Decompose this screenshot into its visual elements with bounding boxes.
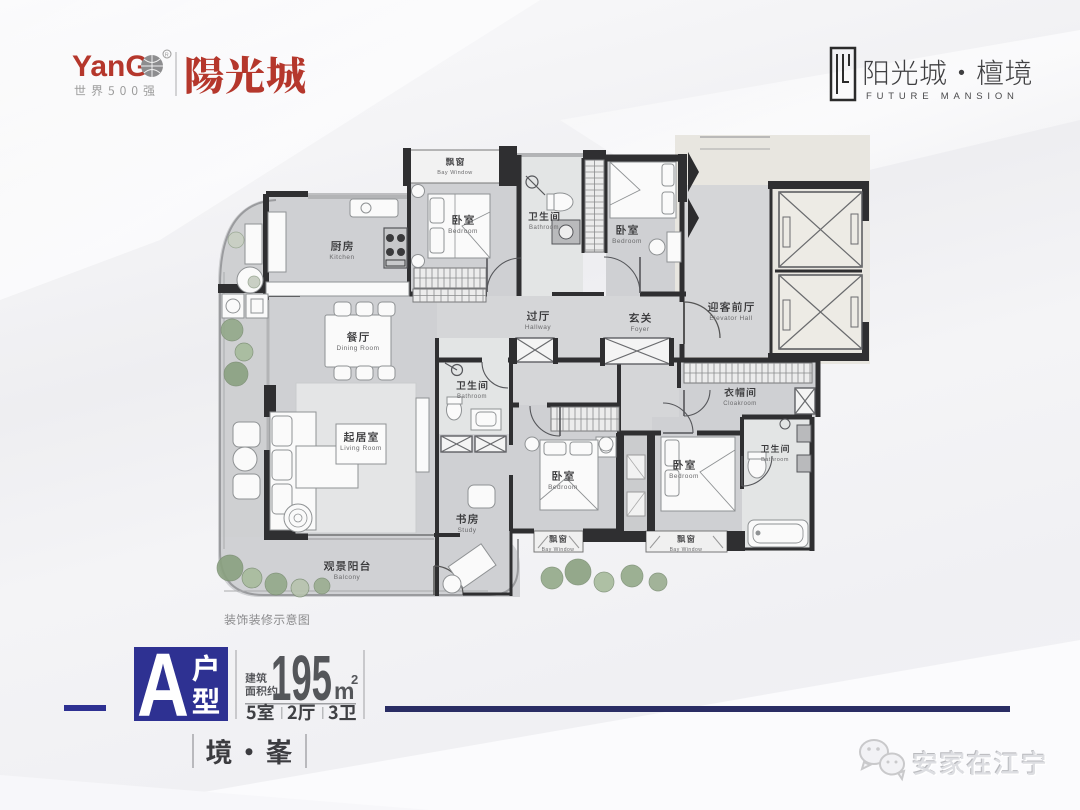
svg-text:Bay Window: Bay Window: [670, 547, 703, 553]
svg-text:Bathroom: Bathroom: [761, 457, 789, 463]
svg-text:Bedroom: Bedroom: [448, 228, 478, 235]
svg-text:Foyer: Foyer: [630, 326, 649, 333]
svg-text:Study: Study: [457, 527, 476, 534]
svg-text:2: 2: [351, 672, 358, 687]
svg-text:Elevator Hall: Elevator Hall: [709, 315, 752, 322]
svg-text:Dining Room: Dining Room: [336, 345, 379, 352]
svg-text:FUTURE MANSION: FUTURE MANSION: [866, 91, 1019, 102]
svg-text:Bay Window: Bay Window: [542, 547, 575, 553]
svg-text:Bedroom: Bedroom: [669, 473, 699, 480]
svg-text:A: A: [137, 636, 189, 736]
svg-text:Bedroom: Bedroom: [612, 238, 642, 245]
svg-text:Living Room: Living Room: [340, 445, 382, 452]
svg-text:Cloakroom: Cloakroom: [723, 401, 757, 407]
svg-text:Kitchen: Kitchen: [329, 254, 354, 261]
svg-text:Bay Window: Bay Window: [437, 170, 473, 176]
svg-text:Bathroom: Bathroom: [529, 225, 559, 231]
svg-text:R: R: [165, 53, 169, 59]
svg-text:Balcony: Balcony: [334, 574, 361, 581]
svg-text:YanG: YanG: [72, 50, 149, 83]
svg-text:Bedroom: Bedroom: [548, 484, 578, 491]
svg-text:Bathroom: Bathroom: [457, 394, 487, 400]
svg-text:Hallway: Hallway: [525, 324, 552, 331]
